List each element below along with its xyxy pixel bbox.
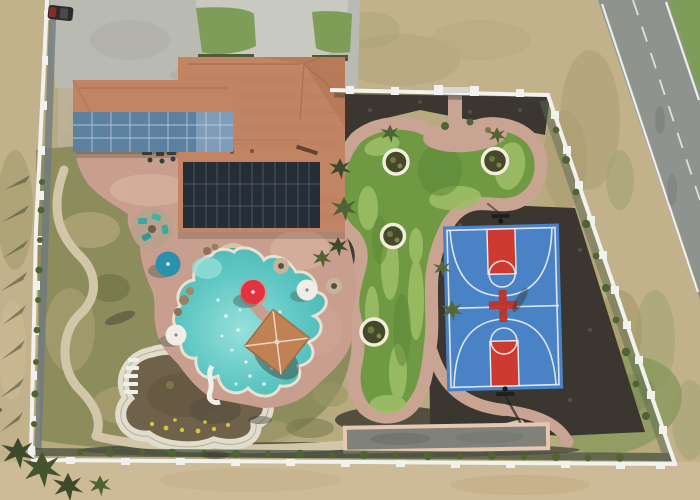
driveway-grass-right: [312, 11, 352, 53]
driveway-grass-left: [196, 7, 256, 54]
planter-ring: [361, 319, 387, 345]
pool-ledge: [192, 257, 222, 279]
aerial-photo: [0, 0, 700, 500]
parked-car: [47, 5, 73, 22]
planter-ring: [384, 150, 408, 174]
house-shadow: [178, 232, 345, 239]
seating-circle: [131, 208, 173, 250]
garage-wing: [73, 80, 233, 152]
planter-ring: [382, 225, 405, 248]
bocce-court: [343, 422, 550, 454]
gate: [440, 87, 472, 93]
planter-ring: [483, 149, 508, 174]
backyard-aerial-scene: [0, 0, 700, 500]
